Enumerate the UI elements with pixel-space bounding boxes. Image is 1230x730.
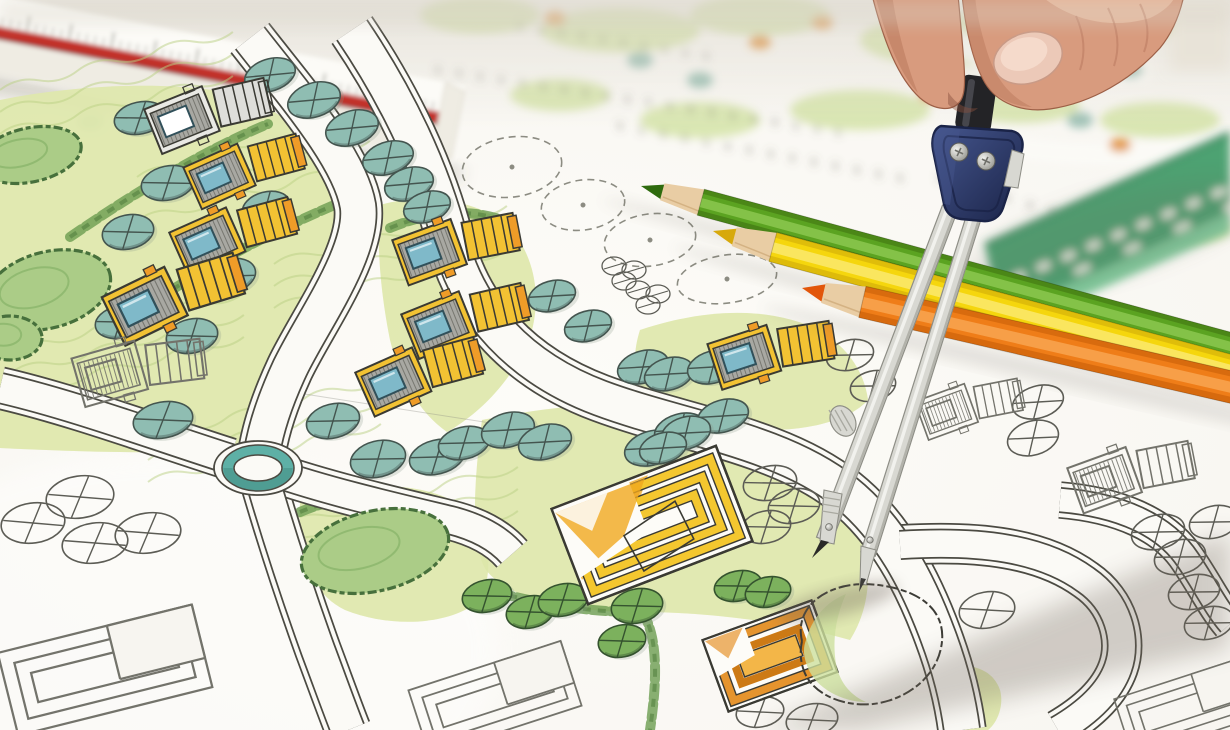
- blurred-house: [1109, 138, 1131, 152]
- roundabout: [214, 441, 302, 495]
- blurred-tick: [1028, 201, 1031, 209]
- clamp-screw: [826, 524, 833, 531]
- photo-scene: [0, 0, 1230, 730]
- top-edge-blur: [0, 0, 1230, 26]
- roundabout-island: [234, 455, 282, 481]
- leg-screw: [867, 537, 873, 543]
- scene-svg: [0, 0, 1230, 730]
